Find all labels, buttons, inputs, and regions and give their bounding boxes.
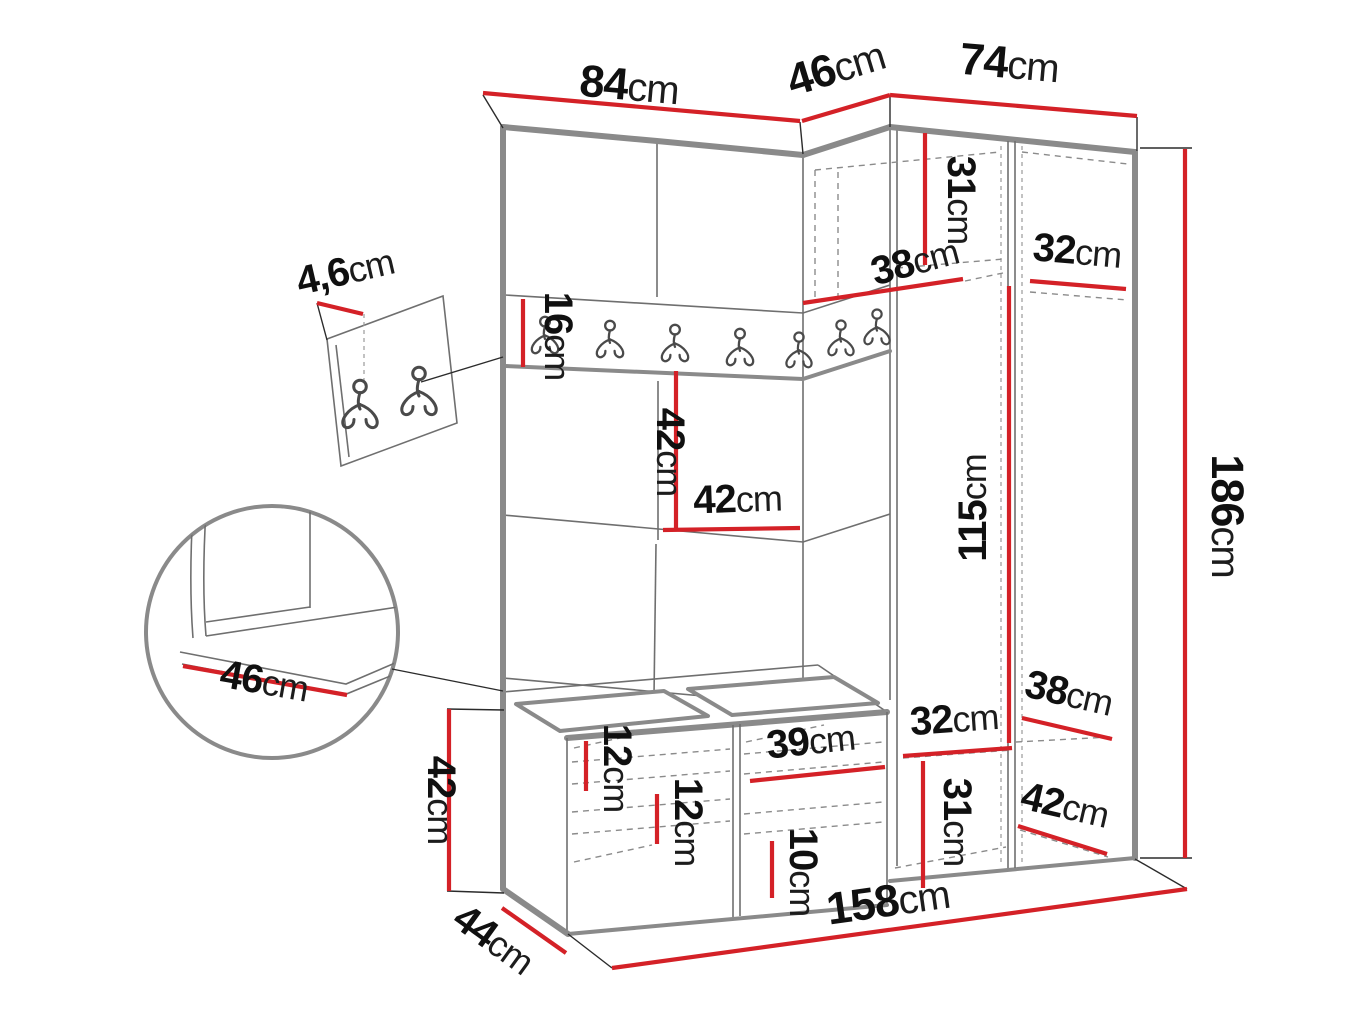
dim-unit: cm [951,696,1000,740]
dim-label-16cm: 16cm [536,292,580,381]
dim-line-32cm-top [1030,281,1126,289]
coat-hook-icon [864,309,889,344]
dim-label-42cm-bench-height: 42cm [419,756,463,845]
dim-label-74cm: 74cm [958,33,1061,92]
dim-label-31cm-bottom: 31cm [935,778,979,867]
dim-label-42cm-horizontal: 42cm [693,475,783,522]
dim-value: 12 [595,724,639,767]
dim-value: 32 [908,697,953,744]
dim-value: 4,6 [292,249,353,304]
dim-unit: cm [1074,231,1123,276]
dim-unit: cm [596,766,637,812]
dim-value: 31 [935,778,979,821]
dim-value: 10 [781,828,825,871]
dim-label-42cm-bottom: 42cm [1017,774,1113,837]
dim-label-31cm-top: 31cm [939,156,983,245]
dim-value: 42 [419,756,463,799]
dim-unit: cm [895,873,952,924]
dim-unit: cm [667,820,708,866]
dim-unit: cm [626,65,681,113]
dim-label-115cm: 115cm [951,454,995,562]
technical-drawing-page: 84cm 46cm 74cm 31cm 38cm 32cm 16cm 42cm … [0,0,1361,1021]
furniture-dimension-diagram: 84cm 46cm 74cm 31cm 38cm 32cm 16cm 42cm … [0,0,1361,1021]
dim-line-32cm-bottom [903,748,1012,756]
dim-label-39cm: 39cm [764,715,857,768]
dim-label-12cm-left: 12cm [595,724,639,813]
coat-hook-icon [828,320,853,355]
dim-value: 42 [693,477,737,522]
dim-value: 46 [217,652,266,703]
wall-hook-panel-detail [317,296,503,466]
dim-unit: cm [735,477,782,520]
dim-unit: cm [953,454,994,500]
dim-label-32cm-bottom: 32cm [908,694,999,744]
dim-value: 32 [1031,225,1077,273]
coat-hook-icon [662,325,688,361]
seat-cushion-right [688,677,878,715]
dim-unit: cm [807,717,857,763]
coat-hook-icon [786,332,811,367]
dim-unit: cm [1006,43,1061,91]
dim-unit: cm [828,34,890,91]
dim-value: 31 [939,156,983,199]
dimension-labels: 84cm 46cm 74cm 31cm 38cm 32cm 16cm 42cm … [217,28,1253,983]
dim-value: 84 [578,55,631,110]
dim-value: 115 [951,499,995,561]
dim-label-42cm-vertical: 42cm [648,408,692,497]
coat-hook-icon [597,321,623,357]
coat-hook-icon [727,329,753,365]
dim-label-10cm: 10cm [781,828,825,917]
dim-unit: cm [537,334,578,380]
dim-value: 39 [764,719,811,767]
dim-line-4-6cm [317,303,363,314]
dim-line-39cm [750,767,885,781]
dim-value: 186 [1202,454,1253,526]
dim-label-84cm: 84cm [578,55,681,114]
dim-line-42cm-horizontal [663,528,800,530]
dim-unit: cm [344,241,398,291]
hook-rail [532,309,890,367]
dim-unit: cm [1062,673,1116,723]
dim-unit: cm [259,661,311,709]
dim-unit: cm [1058,785,1112,835]
dim-value: 42 [648,408,692,451]
dim-label-4-6cm: 4,6cm [292,239,398,304]
dim-unit: cm [782,870,823,916]
dim-label-38cm-bottom: 38cm [1021,662,1117,725]
dim-value: 12 [666,778,710,821]
dim-unit: cm [649,450,690,496]
dim-line-74cm [890,95,1137,116]
dim-unit: cm [1203,526,1247,577]
dim-label-12cm-mid: 12cm [666,778,710,867]
dim-label-46cm-top: 46cm [780,28,890,106]
dim-value: 74 [958,33,1011,88]
dim-value: 158 [823,874,901,935]
dim-value: 16 [536,292,580,335]
dim-unit: cm [420,798,461,844]
dim-label-186cm: 186cm [1202,454,1253,577]
dim-unit: cm [936,820,977,866]
dim-label-32cm-top: 32cm [1031,225,1123,277]
